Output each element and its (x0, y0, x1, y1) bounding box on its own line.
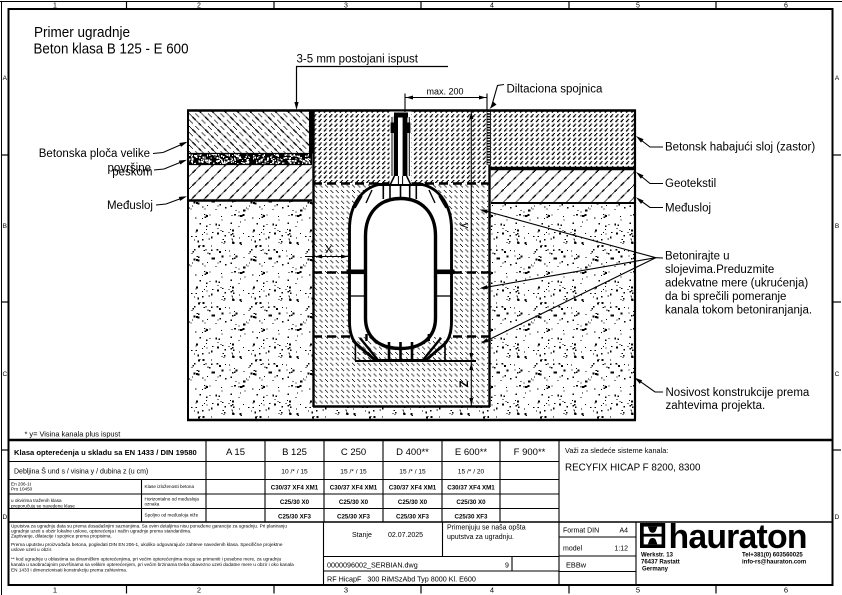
svg-text:D 400**: D 400** (396, 447, 429, 458)
svg-text:hauraton: hauraton (669, 518, 807, 556)
svg-text:2: 2 (197, 2, 201, 9)
svg-text:Međusloj: Međusloj (665, 203, 711, 215)
svg-text:Debljina Š und s / visina y /: Debljina Š und s / visina y / dubina z (… (14, 467, 148, 476)
svg-text:C: C (835, 371, 840, 378)
svg-text:Pro 10450: Pro 10450 (11, 487, 33, 492)
svg-text:Stanje: Stanje (352, 532, 372, 539)
svg-text:A4: A4 (619, 528, 628, 535)
svg-text:uslove uzeti u obzir.: uslove uzeti u obzir. (11, 547, 52, 552)
svg-text:Spoljno od međusloja niže: Spoljno od međusloja niže (145, 513, 199, 518)
svg-text:Klasa opterećenja u skladu sa: Klasa opterećenja u skladu sa EN 1433 / … (14, 448, 197, 457)
svg-text:u okvirima traženih klasa: u okvirima traženih klasa (11, 498, 62, 503)
svg-text:RF HicapF 300 RiMSzAbd Typ 8: RF HicapF 300 RiMSzAbd Typ 8000 Kl. E600 (327, 575, 476, 584)
svg-text:C25/30 XF3: C25/30 XF3 (396, 513, 430, 520)
svg-text:X: X (325, 244, 333, 256)
svg-text:Z: Z (457, 380, 469, 387)
svg-text:C25/30 XF3: C25/30 XF3 (454, 513, 488, 520)
svg-text:y: y (459, 223, 471, 229)
svg-text:zahtevima projekta.: zahtevima projekta. (666, 400, 766, 412)
svg-text:02.07.2025: 02.07.2025 (388, 532, 423, 539)
svg-text:Diltaciona spojnica: Diltaciona spojnica (507, 84, 603, 96)
svg-text:B: B (3, 223, 7, 230)
svg-text:A: A (835, 75, 840, 82)
svg-text:** kod ugradnje u oblastima sa: ** kod ugradnje u oblastima sa dinamički… (11, 557, 282, 562)
svg-text:1:12: 1:12 (614, 546, 628, 553)
svg-text:3: 3 (344, 586, 348, 595)
svg-text:Betonska ploča velike: Betonska ploča velike (39, 148, 150, 160)
svg-text:C25/30 XF3: C25/30 XF3 (278, 513, 312, 520)
svg-text:4: 4 (490, 2, 494, 9)
svg-text:peskom: peskom (112, 167, 152, 179)
svg-text:C25/30 XF3: C25/30 XF3 (337, 513, 371, 520)
svg-text:max. 200: max. 200 (426, 87, 463, 97)
svg-text:5: 5 (636, 586, 640, 595)
svg-text:A: A (3, 75, 8, 82)
svg-text:B 125: B 125 (282, 447, 307, 458)
svg-text:Klase izloženosti betona: Klase izloženosti betona (145, 484, 195, 489)
svg-text:Betonirajte u: Betonirajte u (665, 251, 730, 263)
svg-text:10 /* / 15: 10 /* / 15 (281, 469, 308, 476)
svg-text:Tel+381(0) 603560025: Tel+381(0) 603560025 (742, 553, 803, 559)
svg-text:EBBw: EBBw (566, 561, 587, 570)
svg-text:preporučuju se navedene klase: preporučuju se navedene klase (11, 504, 75, 509)
svg-text:adekvatne mere (ukrućenja): adekvatne mere (ukrućenja) (665, 278, 808, 290)
svg-text:D: D (835, 514, 840, 521)
svg-text:1: 1 (53, 586, 57, 595)
svg-text:0000096002_SERBIAN.dwg: 0000096002_SERBIAN.dwg (327, 561, 418, 570)
svg-text:kanala u saobraćajnim površina: kanala u saobraćajnim površinama sa veli… (11, 562, 294, 567)
svg-text:76437 Rastatt: 76437 Rastatt (641, 560, 680, 566)
svg-text:Geotekstil: Geotekstil (665, 178, 716, 190)
svg-text:1: 1 (53, 2, 57, 9)
svg-text:5: 5 (636, 2, 640, 9)
svg-text:da bi sprečili pomeranje: da bi sprečili pomeranje (665, 291, 786, 303)
svg-text:Važi za sledeće sisteme kanala: Važi za sledeće sisteme kanala: (565, 446, 668, 455)
svg-text:Primer ugradnje: Primer ugradnje (34, 24, 130, 41)
svg-text:2: 2 (197, 586, 201, 595)
svg-text:C30/37 XF4 XM1: C30/37 XF4 XM1 (389, 485, 437, 492)
svg-text:C: C (2, 371, 7, 378)
svg-text:6: 6 (784, 586, 788, 595)
svg-text:slojevima.Preduzmite: slojevima.Preduzmite (665, 264, 774, 276)
svg-text:Primenjuju se naša opšta: Primenjuju se naša opšta (447, 525, 526, 532)
svg-text:Format DIN: Format DIN (563, 528, 599, 535)
svg-text:D: D (2, 514, 7, 521)
svg-text:Betonsk habajući sloj (zastor): Betonsk habajući sloj (zastor) (665, 142, 815, 154)
svg-text:C30/37 XF4 XM1: C30/37 XF4 XM1 (447, 485, 495, 492)
svg-text:uputstva za ugradnju.: uputstva za ugradnju. (447, 534, 514, 541)
svg-text:9: 9 (505, 563, 509, 570)
svg-text:B: B (835, 223, 839, 230)
svg-text:EN 1433 i dimenzionisati konst: EN 1433 i dimenzionisati konstrukciju pr… (11, 568, 127, 573)
svg-text:C25/30 X0: C25/30 X0 (280, 499, 310, 506)
svg-text:Werkstr. 13: Werkstr. 13 (641, 553, 674, 559)
svg-text:kanala tokom betoniranjanja.: kanala tokom betoniranjanja. (665, 305, 812, 317)
svg-text:info-rs@hauraton.com: info-rs@hauraton.com (742, 560, 806, 566)
svg-text:C25/30 X0: C25/30 X0 (398, 499, 428, 506)
svg-text:15 /* / 20: 15 /* / 20 (458, 469, 485, 476)
svg-text:* y= Visina kanala plus ispust: * y= Visina kanala plus ispust (25, 430, 121, 439)
svg-text:Germany: Germany (642, 567, 669, 573)
svg-text:F 900**: F 900** (514, 447, 546, 458)
svg-text:C25/30 X0: C25/30 X0 (339, 499, 369, 506)
svg-text:E 600**: E 600** (455, 447, 488, 458)
svg-text:C30/37 XF4 XM1: C30/37 XF4 XM1 (330, 485, 378, 492)
svg-text:model: model (563, 546, 583, 553)
svg-text:oznaka: oznaka (145, 502, 160, 507)
svg-text:A 15: A 15 (226, 447, 245, 458)
svg-text:3-5 mm postojani ispust: 3-5 mm postojani ispust (297, 54, 419, 66)
svg-text:3: 3 (344, 2, 348, 9)
svg-text:C25/30 X0: C25/30 X0 (456, 499, 486, 506)
svg-text:C 250: C 250 (341, 447, 366, 458)
svg-text:Nosivost konstrukcije prema: Nosivost konstrukcije prema (666, 387, 810, 399)
svg-text:Beton klasa B 125 - E 600: Beton klasa B 125 - E 600 (34, 41, 189, 58)
svg-text:C30/37 XF4 XM1: C30/37 XF4 XM1 (271, 485, 319, 492)
svg-text:RECYFIX HICAP F 8200, 8300: RECYFIX HICAP F 8200, 8300 (565, 463, 701, 474)
svg-text:15 /* / 15: 15 /* / 15 (340, 469, 367, 476)
svg-text:Međusloj: Međusloj (107, 200, 153, 212)
svg-text:4: 4 (490, 586, 494, 595)
svg-text:15 /* / 15: 15 /* / 15 (399, 469, 426, 476)
svg-text:6: 6 (784, 2, 788, 9)
svg-text:Zaptivanje, dilatacije i spojn: Zaptivanje, dilatacije i spojnice prema … (11, 534, 112, 539)
